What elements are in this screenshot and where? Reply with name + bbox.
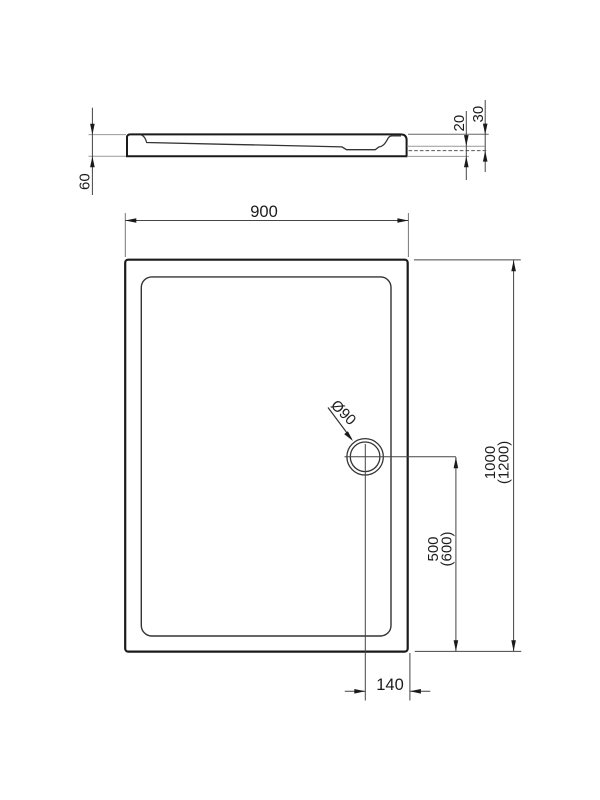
svg-text:30: 30 bbox=[470, 106, 487, 123]
svg-text:140: 140 bbox=[376, 676, 404, 694]
svg-text:20: 20 bbox=[451, 115, 468, 132]
svg-text:60: 60 bbox=[77, 173, 94, 190]
svg-text:Ø90: Ø90 bbox=[327, 397, 359, 429]
svg-text:900: 900 bbox=[250, 203, 278, 221]
svg-text:1000(1200): 1000(1200) bbox=[482, 441, 513, 484]
svg-text:500(600): 500(600) bbox=[425, 531, 456, 566]
